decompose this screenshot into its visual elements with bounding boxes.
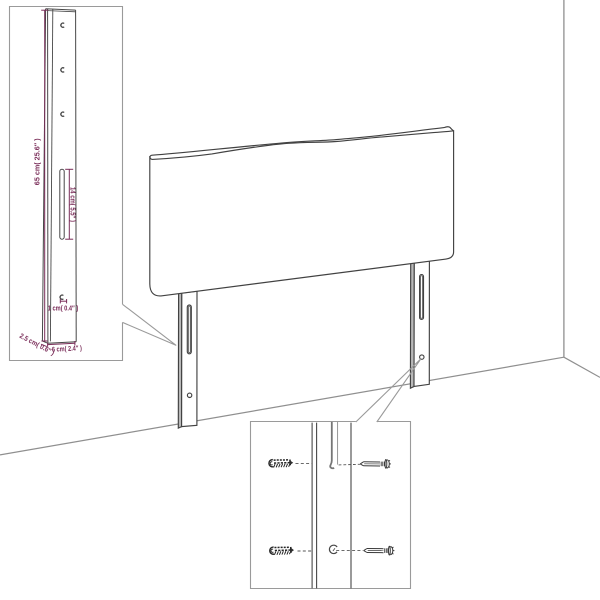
svg-text:14 cm( 5.5″ ): 14 cm( 5.5″ ) bbox=[69, 187, 77, 223]
svg-text:65 cm( 25.6″ ): 65 cm( 25.6″ ) bbox=[33, 138, 42, 185]
svg-text:1 cm( 0.4″ ): 1 cm( 0.4″ ) bbox=[48, 304, 79, 312]
svg-text:6 cm( 2.4″ ): 6 cm( 2.4″ ) bbox=[52, 344, 83, 354]
